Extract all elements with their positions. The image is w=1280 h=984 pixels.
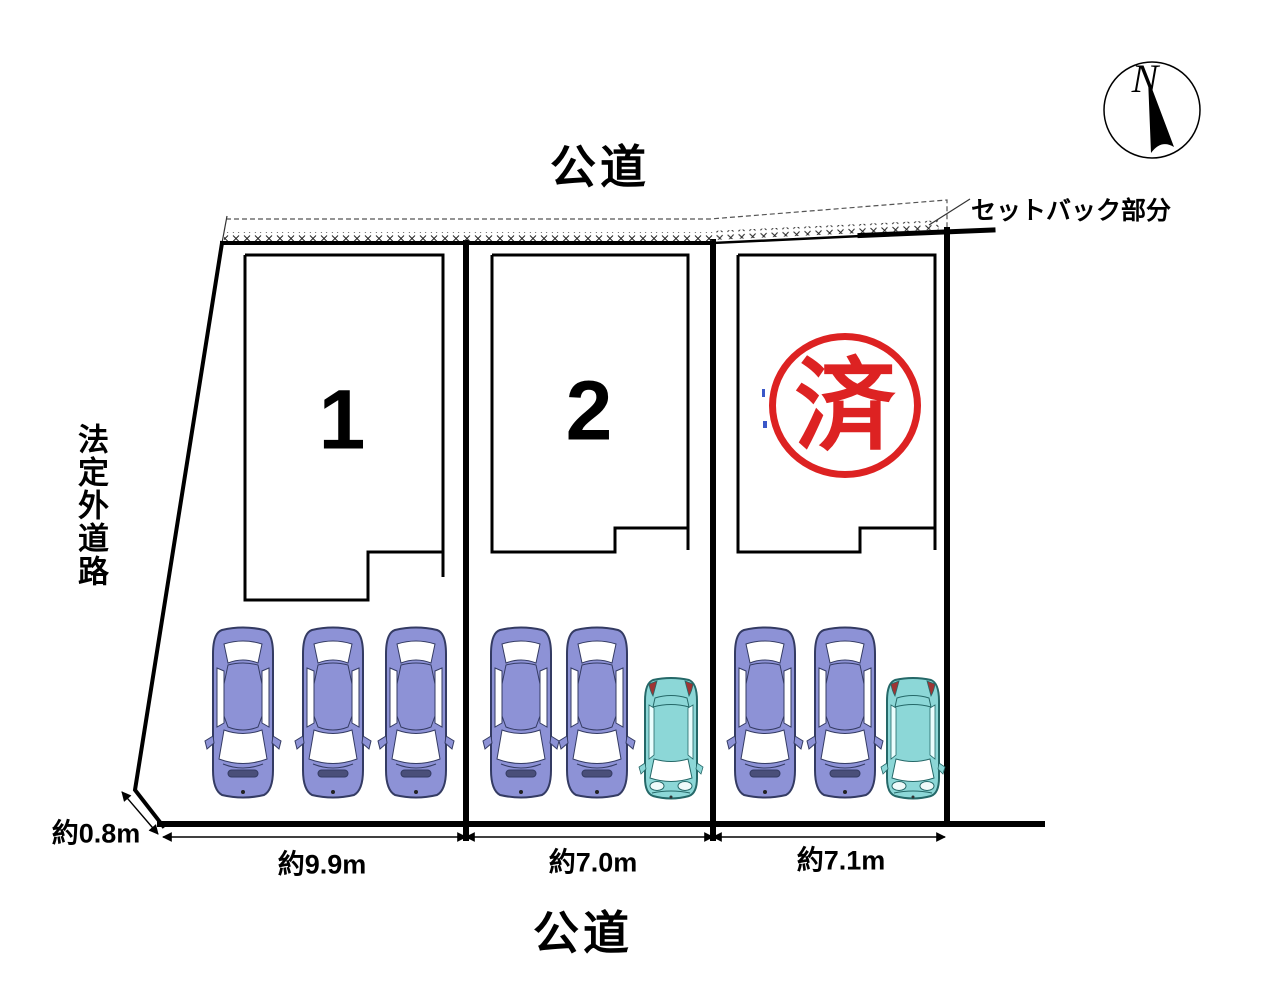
car-icon bbox=[483, 628, 559, 798]
compass-north-label: N bbox=[1132, 55, 1159, 102]
lot-1-number: 1 bbox=[319, 372, 366, 469]
car-icon bbox=[205, 628, 281, 798]
lot-2-number: 2 bbox=[566, 363, 613, 460]
car-icon bbox=[559, 628, 635, 798]
setback-dashed-line bbox=[226, 200, 947, 229]
dimension-lot2-frontage: 約7.0m bbox=[549, 841, 638, 880]
dimension-lines bbox=[122, 792, 945, 837]
bottom-road-label: 公道 bbox=[533, 897, 633, 963]
car-icon bbox=[807, 628, 883, 798]
parked-cars bbox=[205, 628, 945, 799]
boundary-hatch bbox=[224, 232, 713, 241]
car-icon bbox=[378, 628, 454, 798]
artifact-mark bbox=[762, 389, 765, 397]
setback-leader-line bbox=[929, 199, 970, 225]
top-road-label: 公道 bbox=[550, 131, 650, 197]
sold-stamp-text: 済 bbox=[794, 357, 895, 458]
car-icon bbox=[881, 678, 945, 799]
dimension-lot1-frontage: 約9.9m bbox=[278, 843, 367, 882]
sold-stamp: 済 bbox=[769, 333, 921, 478]
car-icon bbox=[727, 628, 803, 798]
artifact-mark bbox=[763, 421, 767, 428]
dimension-lot3-frontage: 約7.1m bbox=[797, 839, 886, 878]
dimension-side-offset: 約0.8m bbox=[52, 812, 141, 851]
side-road-label: 法定外道路 bbox=[68, 423, 113, 588]
car-icon bbox=[295, 628, 371, 798]
setback-label: セットバック部分 bbox=[971, 191, 1171, 227]
car-icon bbox=[639, 678, 703, 799]
